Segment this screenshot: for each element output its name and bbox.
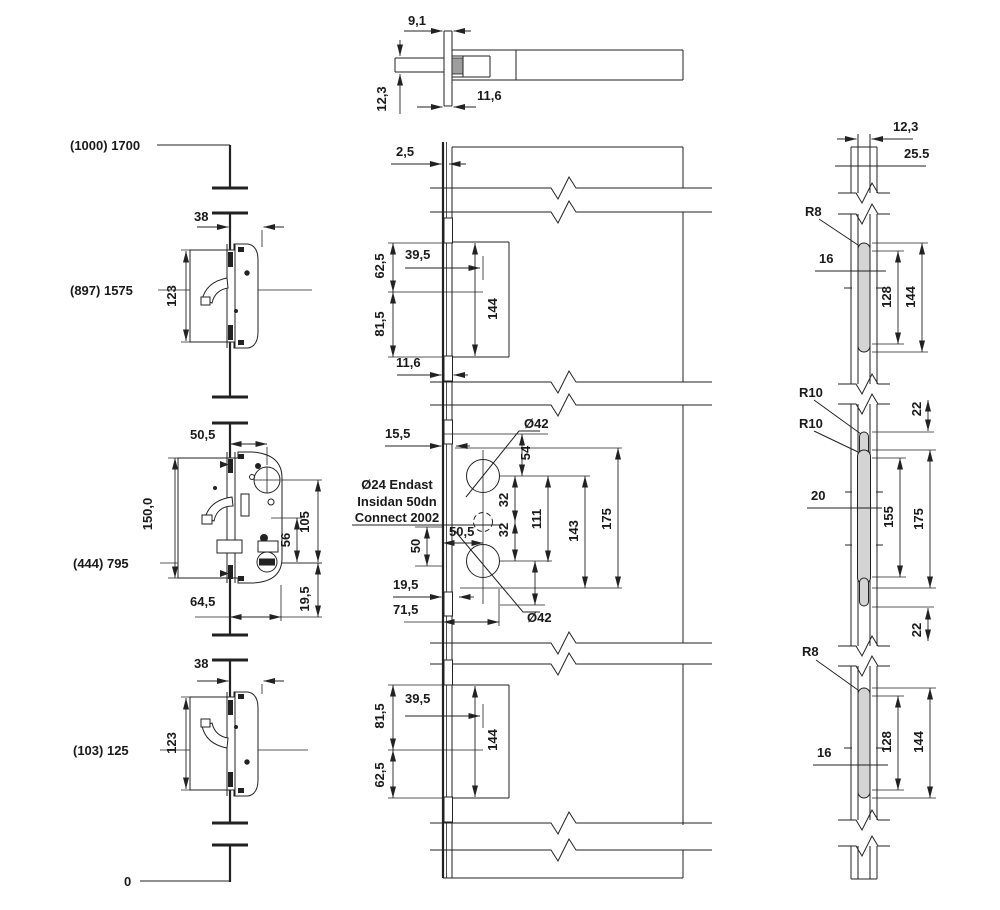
pocket-bottom-detail: 144 81,5 62,5 39,5 — [372, 685, 509, 798]
top-section-view: 9,1 12,3 11,6 — [374, 13, 683, 114]
dim-50-5-lock-label: 50,5 — [190, 427, 215, 442]
dia-42-bot-label: Ø42 — [527, 610, 552, 625]
faceplate-screw-slots — [444, 218, 453, 822]
dia-42-top-label: Ø42 — [524, 416, 549, 431]
note-line-3: Connect 2002 — [355, 510, 440, 525]
dim-143-label: 143 — [566, 520, 581, 542]
elev-1700-label: (1000) 1700 — [70, 138, 140, 153]
pocket-top-detail: 144 62,5 81,5 39,5 2,5 11,6 — [372, 144, 509, 375]
strike-profile-view: 12,3 25.5 R8 16 128 144 R10 R10 22 20 15… — [799, 119, 936, 879]
dim-12-3-label: 12,3 — [374, 86, 389, 111]
dim-81-5-top: 81,5 — [372, 311, 387, 336]
dim-144-pocket-bot: 144 — [485, 728, 500, 750]
dim-56-label: 56 — [278, 533, 293, 547]
dim-62-5-top: 62,5 — [372, 253, 387, 278]
dim-22-top-label: 22 — [909, 402, 924, 416]
dim-123-bot-label: 123 — [164, 732, 179, 754]
radius-r8-top-label: R8 — [805, 204, 822, 219]
dim-38-top-label: 38 — [194, 209, 208, 224]
radius-r10-a-label: R10 — [799, 385, 823, 400]
dim-25-5-label: 25.5 — [904, 146, 929, 161]
note-block: Ø24 Endast Insidan 50dn Connect 2002 — [352, 477, 502, 525]
dim-39-5-top: 39,5 — [405, 247, 430, 262]
dim-50-label: 50 — [408, 539, 423, 553]
dim-105-label: 105 — [297, 511, 312, 533]
dim-19-5-lock-label: 19,5 — [297, 586, 312, 611]
dim-62-5-bot: 62,5 — [372, 762, 387, 787]
radius-r8-bot-label: R8 — [802, 644, 819, 659]
dim-12-3-strike-label: 12,3 — [893, 119, 918, 134]
dim-128-bot-label: 128 — [879, 731, 894, 753]
dim-22-bot-label: 22 — [909, 623, 924, 637]
note-line-2: Insidan 50dn — [357, 494, 437, 509]
dim-9-1-label: 9,1 — [408, 13, 426, 28]
elev-125-label: (103) 125 — [73, 743, 129, 758]
hook-lock-top-view: 38 123 — [164, 209, 284, 348]
dim-111-label: 111 — [529, 509, 544, 529]
dim-2-5-label: 2,5 — [396, 144, 414, 159]
elev-0-label: 0 — [124, 874, 131, 889]
dim-54-top-label: 54 — [518, 445, 533, 460]
dim-16-top-label: 16 — [819, 251, 833, 266]
elev-1575-label: (897) 1575 — [70, 283, 133, 298]
dim-144-strike-top-label: 144 — [903, 285, 918, 307]
dim-144-pocket-top: 144 — [485, 297, 500, 319]
faceplate-view: 144 62,5 81,5 39,5 2,5 11,6 15,5 — [352, 142, 712, 878]
dim-81-5-bot: 81,5 — [372, 703, 387, 728]
note-line-1: Ø24 Endast — [361, 477, 433, 492]
radius-r10-b-label: R10 — [799, 416, 823, 431]
dim-128-top-label: 128 — [879, 286, 894, 308]
elev-795-label: (444) 795 — [73, 556, 129, 571]
dim-32-a-label: 32 — [496, 493, 511, 507]
dim-15-5-label: 15,5 — [385, 426, 410, 441]
lock-technical-drawing: 9,1 12,3 11,6 (1000) 1700 (897) 1575 (44… — [0, 0, 1000, 910]
dim-150-label: 150,0 — [140, 498, 155, 531]
dim-20-label: 20 — [811, 488, 825, 503]
cylinder-holes-detail: 15,5 54 32 32 111 143 175 50 50,5 19,5 7… — [352, 416, 622, 626]
dim-11-6-top-label: 11,6 — [477, 88, 502, 103]
dim-123-top-label: 123 — [164, 285, 179, 307]
hook-lock-bottom-view: 38 123 — [164, 656, 284, 796]
dim-175-label: 175 — [599, 508, 614, 530]
break-lines — [430, 177, 712, 861]
dim-19-5-plate-label: 19,5 — [393, 577, 418, 592]
dim-155-label: 155 — [881, 506, 896, 528]
dim-16-bot-label: 16 — [817, 745, 831, 760]
dim-39-5-bot: 39,5 — [405, 691, 430, 706]
dim-71-5-label: 71,5 — [393, 602, 418, 617]
dim-175-strike-label: 175 — [911, 508, 926, 530]
dim-64-5-label: 64,5 — [190, 594, 215, 609]
dim-38-bot-label: 38 — [194, 656, 208, 671]
dim-50-5-plate-label: 50,5 — [449, 524, 474, 539]
drawing-canvas: 9,1 12,3 11,6 (1000) 1700 (897) 1575 (44… — [0, 0, 1000, 910]
dim-144-strike-bot-label: 144 — [911, 730, 926, 752]
dim-11-6-mid-label: 11,6 — [396, 355, 421, 370]
